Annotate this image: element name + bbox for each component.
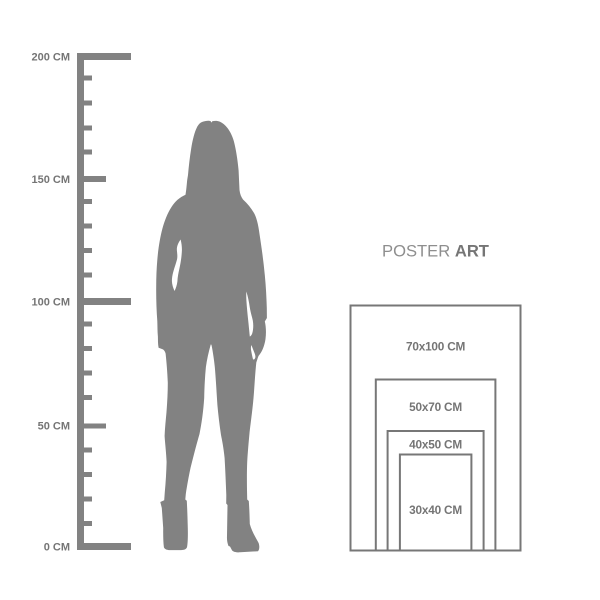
svg-text:0 CM: 0 CM xyxy=(44,542,70,554)
svg-text:POSTER ART: POSTER ART xyxy=(382,242,489,261)
svg-text:30x40 CM: 30x40 CM xyxy=(409,503,462,517)
svg-text:50x70 CM: 50x70 CM xyxy=(409,400,462,414)
svg-text:200 CM: 200 CM xyxy=(31,52,70,64)
svg-text:50 CM: 50 CM xyxy=(38,421,70,433)
svg-text:150 CM: 150 CM xyxy=(31,174,70,186)
svg-text:100 CM: 100 CM xyxy=(31,297,70,309)
svg-text:70x100 CM: 70x100 CM xyxy=(406,339,466,353)
svg-text:40x50 CM: 40x50 CM xyxy=(409,438,462,452)
